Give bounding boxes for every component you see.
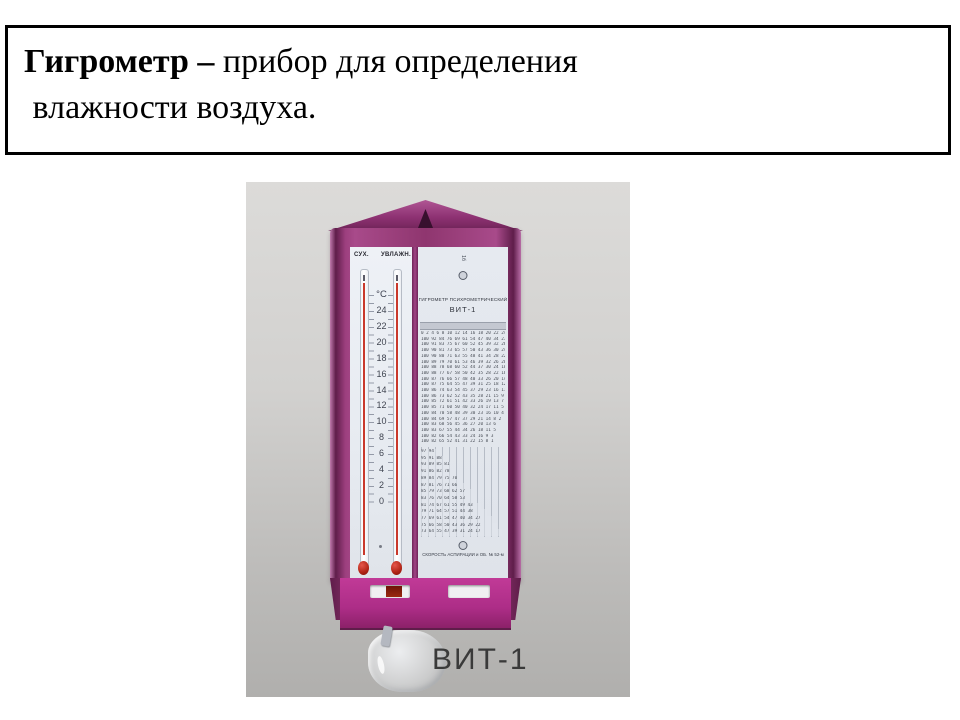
psychrometric-label: 1б ГИГРОМЕТР ПСИХРОМЕТРИЧЕСКИЙ ВИТ-1 0 2… [418, 247, 508, 578]
temperature-scale: 242220181614121086420 [371, 247, 392, 578]
thermometer-top-mark [363, 275, 365, 281]
scale-number: 0 [371, 496, 392, 506]
scale-number: 8 [371, 432, 392, 442]
scale-number: 18 [371, 353, 392, 363]
dry-thermometer-label: СУХ. [354, 252, 369, 258]
wick-window [386, 586, 402, 597]
definition-text-line2: влажности воздуха. [24, 89, 316, 126]
scale-number: 20 [371, 337, 392, 347]
table-row: 100 83 67 55 44 34 26 18 11 5 [421, 428, 505, 434]
scale-number: 2 [371, 480, 392, 490]
thermometer-panel: СУХ. УВЛАЖН. °С 242220181614121086420 [350, 247, 412, 578]
device-panel: СУХ. УВЛАЖН. °С 242220181614121086420 [350, 247, 508, 578]
photo-caption: ВИТ-1 [432, 643, 529, 677]
staircase-row: 81 74 67 61 55 49 43 [421, 503, 481, 510]
glass-highlight [376, 656, 386, 675]
hygrometer-photo: СУХ. УВЛАЖН. °С 242220181614121086420 [246, 182, 630, 697]
scale-number: 6 [371, 448, 392, 458]
mercury-column [396, 283, 398, 555]
table-row: 100 88 77 67 58 50 42 35 28 22 16 10 [421, 371, 505, 377]
reservoir-clip [380, 625, 392, 646]
right-slot [448, 585, 490, 598]
staircase-row: 83 76 70 64 58 53 [421, 496, 476, 503]
scale-number: 16 [371, 369, 392, 379]
table-row: 100 90 80 71 63 55 48 41 34 28 22 16 [421, 354, 505, 360]
staircase-row: 79 71 64 57 51 44 38 [421, 509, 487, 516]
table-row: 0 2 4 6 8 10 12 14 16 18 20 22 24 [421, 331, 505, 337]
device-base [340, 578, 511, 630]
staircase-rows: 97 9495 91 8893 89 85 8191 86 82 7889 84… [421, 449, 505, 536]
staircase-row: 89 84 79 75 70 [421, 476, 461, 483]
dry-thermometer-tube [360, 269, 369, 571]
table-row: 100 90 81 73 65 57 50 43 36 30 24 18 [421, 348, 505, 354]
table-row: 100 84 70 58 48 39 30 23 16 10 4 [421, 411, 505, 417]
label-top-mark: 1б [460, 255, 466, 261]
scale-number: 10 [371, 416, 392, 426]
mercury-column [363, 283, 365, 555]
staircase-row: 77 69 61 54 47 40 34 27 [421, 516, 492, 523]
table-row: 100 86 74 63 54 45 37 29 23 16 11 5 [421, 388, 505, 394]
standard-mark-icon [459, 541, 468, 550]
scale-number: 22 [371, 321, 392, 331]
wet-thermometer-tube [393, 269, 402, 571]
humidity-staircase: 97 9495 91 8893 89 85 8191 86 82 7889 84… [421, 447, 505, 537]
staircase-row: 75 66 58 50 43 36 29 22 [421, 523, 497, 530]
table-header-band [420, 322, 506, 330]
scale-number: 12 [371, 400, 392, 410]
left-slot [370, 585, 410, 598]
wet-thermometer-bulb [391, 561, 402, 575]
definition-term: Гигрометр – [24, 43, 223, 80]
thermometer-top-mark [396, 275, 398, 281]
device-body: СУХ. УВЛАЖН. °С 242220181614121086420 [330, 228, 521, 582]
table-row: 100 82 65 52 41 31 22 15 8 1 [421, 439, 505, 445]
staircase-row: 93 89 85 81 [421, 462, 451, 469]
definition-text-line1: прибор для определения [223, 43, 578, 80]
staircase-row: 87 81 76 71 66 [421, 483, 466, 490]
label-bottom-note: СКОРОСТЬ АСПИРАЦИИ и ОБ. № 52-м [418, 552, 508, 557]
label-title: ГИГРОМЕТР ПСИХРОМЕТРИЧЕСКИЙ [418, 297, 508, 302]
panel-screw [379, 545, 382, 548]
scale-number: 4 [371, 464, 392, 474]
table-row: 100 85 71 60 50 40 32 24 17 11 5 0 [421, 405, 505, 411]
psychrometric-table: 0 2 4 6 8 10 12 14 16 18 20 22 24100 92 … [421, 331, 505, 445]
staircase-row: 91 86 82 78 [421, 469, 456, 476]
label-model: ВИТ-1 [418, 305, 508, 314]
scale-number: 14 [371, 385, 392, 395]
definition-box: Гигрометр – прибор для определения влажн… [5, 25, 951, 155]
maker-logo-icon [459, 271, 468, 280]
staircase-row: 73 64 55 47 39 31 24 17 [421, 529, 502, 536]
scale-number: 24 [371, 305, 392, 315]
staircase-row: 95 91 88 [421, 456, 446, 463]
dry-thermometer-bulb [358, 561, 369, 575]
staircase-row: 85 79 73 68 62 57 [421, 489, 471, 496]
staircase-row: 97 94 [421, 449, 441, 456]
